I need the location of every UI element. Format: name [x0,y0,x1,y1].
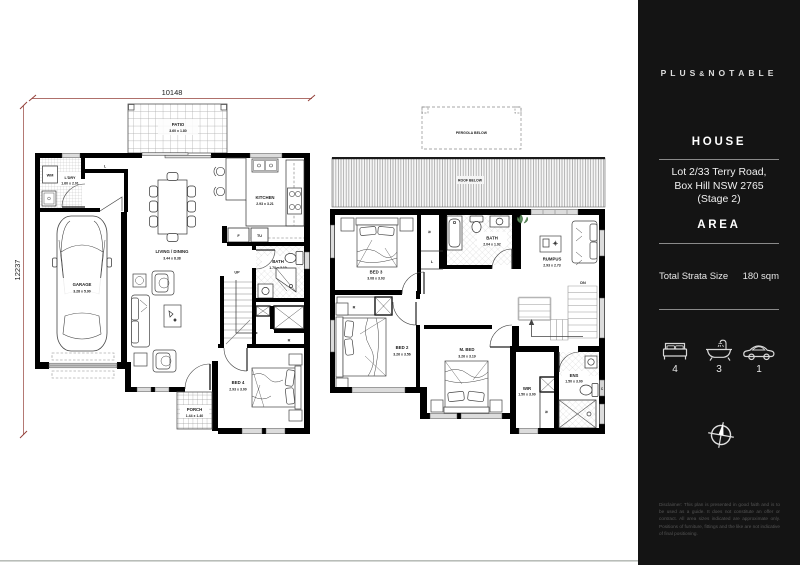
svg-text:BED 2: BED 2 [396,345,409,350]
svg-text:2.04 x 1.92: 2.04 x 1.92 [483,243,501,247]
svg-text:WM: WM [47,174,54,178]
svg-text:4: 4 [672,364,678,375]
svg-text:ENS: ENS [570,373,579,378]
svg-text:BED 3: BED 3 [370,270,383,275]
svg-text:R: R [427,231,431,234]
svg-text:PERGOLA BELOW: PERGOLA BELOW [456,131,488,135]
svg-text:WIR: WIR [523,386,532,391]
svg-text:KITCHEN: KITCHEN [255,195,274,200]
svg-text:3.28 x 5.90: 3.28 x 5.90 [73,290,91,294]
svg-text:1.50 x 3.00: 1.50 x 3.00 [565,380,583,384]
svg-text:R: R [544,411,548,414]
svg-text:12237: 12237 [13,260,22,281]
svg-text:3.26 x 3.56: 3.26 x 3.56 [393,353,411,357]
svg-text:DN: DN [580,281,586,285]
svg-text:1.60 x 2.01: 1.60 x 2.01 [61,182,79,186]
svg-text:3.26 x 3.19: 3.26 x 3.19 [458,355,476,359]
svg-text:L: L [431,260,434,264]
svg-text:2.93 x 3.00: 2.93 x 3.00 [229,388,247,392]
svg-text:1: 1 [756,364,762,375]
svg-text:PORCH: PORCH [187,407,203,412]
svg-text:BATH: BATH [272,259,284,264]
svg-text:LIVING / DINING: LIVING / DINING [156,249,190,254]
svg-text:10148: 10148 [162,88,183,97]
svg-text:R: R [288,339,291,343]
svg-text:PATIO: PATIO [172,122,185,127]
svg-text:3.44 x 8.38: 3.44 x 8.38 [163,257,181,261]
svg-text:L'DRY: L'DRY [64,176,76,180]
svg-text:GARAGE: GARAGE [73,282,92,287]
svg-text:UP: UP [234,271,240,275]
svg-text:L: L [104,165,107,169]
svg-text:3.08 x 3.03: 3.08 x 3.03 [367,277,385,281]
svg-text:M. BED: M. BED [459,347,474,352]
svg-text:3: 3 [716,364,722,375]
svg-text:BED 4: BED 4 [232,380,245,385]
svg-text:2.93 x 2.73: 2.93 x 2.73 [543,264,561,268]
svg-text:RUMPUS: RUMPUS [543,257,562,262]
svg-text:2.93 x 3.21: 2.93 x 3.21 [256,202,274,206]
svg-text:R: R [353,306,356,310]
svg-text:TU: TU [257,234,262,238]
svg-text:1.50 x 3.00: 1.50 x 3.00 [518,393,536,397]
svg-text:BATH: BATH [486,236,498,241]
svg-text:1.44 x 1.40: 1.44 x 1.40 [186,414,204,418]
svg-text:3.60 x 1.80: 3.60 x 1.80 [169,129,187,133]
svg-text:ROOF BELOW: ROOF BELOW [458,179,483,183]
